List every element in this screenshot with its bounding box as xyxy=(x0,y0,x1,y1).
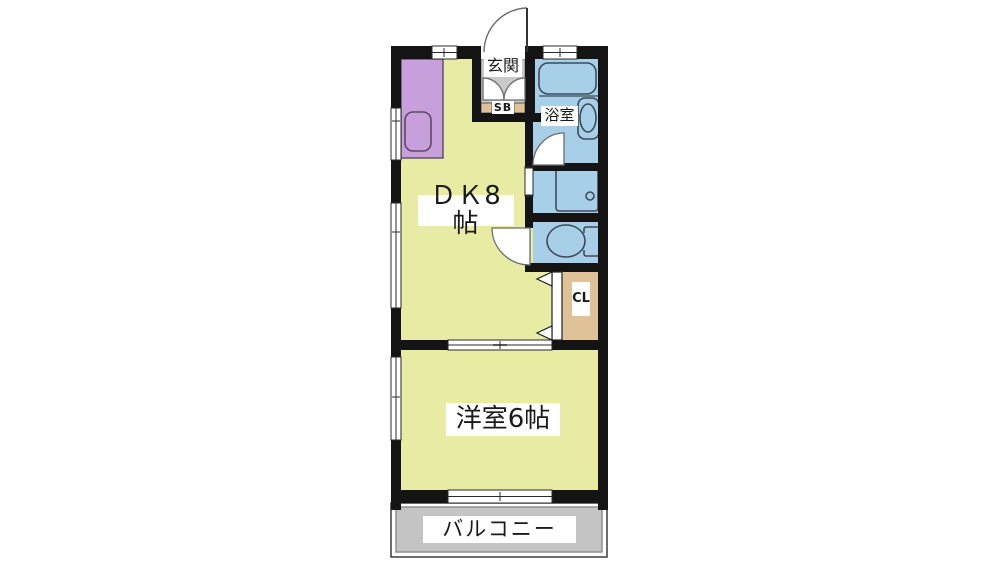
wall-toilet-bottom xyxy=(525,263,608,272)
window-left-1 xyxy=(391,108,401,160)
floorplan-drawing xyxy=(0,0,1000,562)
wall-dk-east-b xyxy=(525,196,533,228)
room-label-dk: ＤＫ8帖 xyxy=(418,195,514,226)
room-label-balcony: バルコニー xyxy=(423,516,576,543)
shoebox-block-right xyxy=(514,103,525,113)
wall-dk-east-a xyxy=(525,122,533,167)
floorplan-canvas: ＤＫ8帖 洋室6帖 玄関 浴室 SB CL バルコニー xyxy=(0,0,1000,562)
window-top-right xyxy=(543,46,577,59)
washroom-opening xyxy=(525,167,533,196)
room-label-closet: CL xyxy=(572,282,590,316)
window-left-3 xyxy=(391,357,401,440)
room-label-entrance: 玄関 xyxy=(484,56,522,77)
sliding-door-mid xyxy=(448,340,552,350)
shoebox-block-left xyxy=(481,103,492,113)
room-label-western-room: 洋室6帖 xyxy=(446,403,560,436)
wall-entrance-right xyxy=(525,46,535,122)
wall-entrance-left xyxy=(472,46,481,122)
wall-wash-bottom xyxy=(525,213,608,222)
sliding-window-balcony xyxy=(448,490,552,503)
window-top-left xyxy=(432,46,457,59)
room-label-bathroom: 浴室 xyxy=(541,106,578,126)
wall-right xyxy=(598,46,608,510)
wall-below-shoebox xyxy=(472,113,550,122)
entrance-door-arc xyxy=(484,8,527,52)
window-left-2 xyxy=(391,203,401,308)
kitchen-counter-icon xyxy=(401,59,443,158)
room-label-shoebox: SB xyxy=(492,101,514,114)
